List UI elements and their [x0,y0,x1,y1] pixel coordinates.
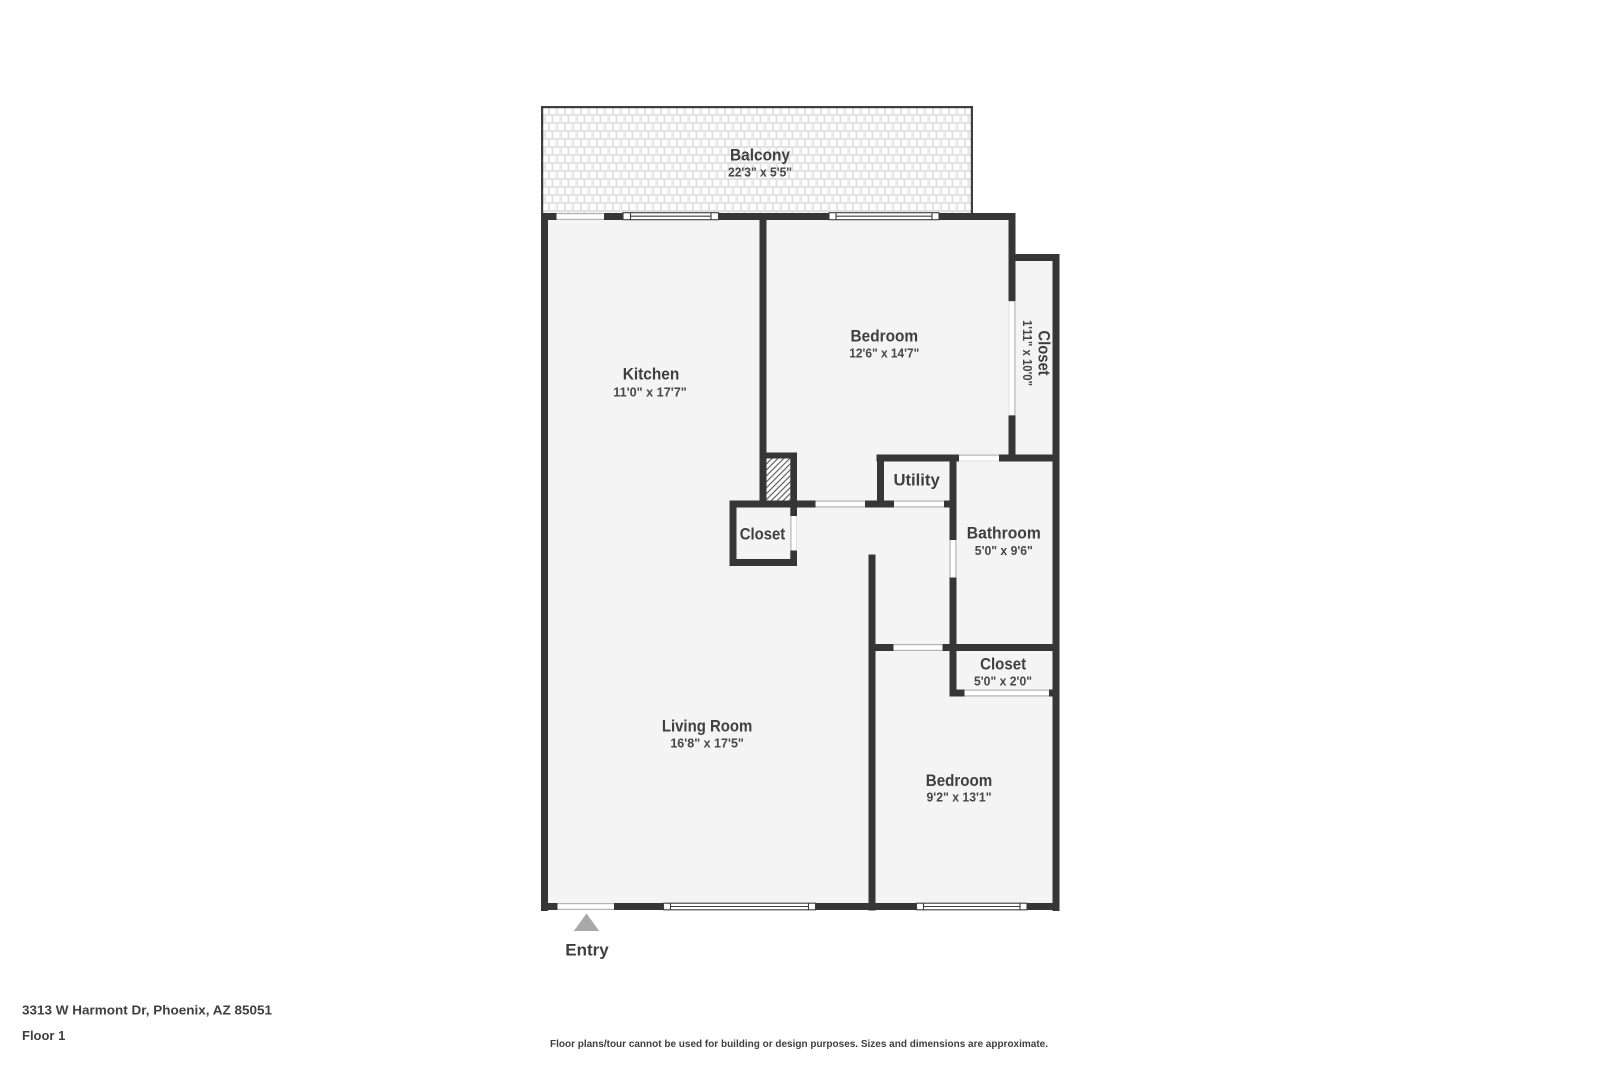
svg-text:Closet: Closet [740,525,786,544]
svg-text:Utility: Utility [893,471,940,490]
svg-text:Bedroom: Bedroom [926,771,993,790]
svg-text:9'2" x 13'1": 9'2" x 13'1" [927,790,992,805]
svg-text:11'0" x 17'7": 11'0" x 17'7" [613,385,687,400]
svg-text:Bathroom: Bathroom [967,524,1041,543]
svg-text:Closet: Closet [1035,330,1054,375]
svg-text:3313 W Harmont Dr, Phoenix, AZ: 3313 W Harmont Dr, Phoenix, AZ 85051 [22,1003,272,1018]
svg-text:Floor 1: Floor 1 [22,1028,65,1043]
svg-text:Kitchen: Kitchen [623,365,680,384]
svg-text:22'3" x 5'5": 22'3" x 5'5" [728,165,792,180]
svg-text:12'6" x 14'7": 12'6" x 14'7" [849,346,919,361]
svg-text:16'8" x 17'5": 16'8" x 17'5" [670,736,744,751]
svg-text:5'0" x 2'0": 5'0" x 2'0" [974,674,1032,689]
svg-text:Floor plans/tour cannot be use: Floor plans/tour cannot be used for buil… [550,1039,1048,1050]
svg-text:Entry: Entry [565,941,609,960]
svg-text:1'11" x 10'0": 1'11" x 10'0" [1020,320,1035,386]
svg-text:Bedroom: Bedroom [851,327,919,346]
svg-text:Living Room: Living Room [662,717,753,736]
svg-text:Closet: Closet [980,655,1026,674]
svg-text:Balcony: Balcony [730,146,790,165]
svg-text:5'0" x 9'6": 5'0" x 9'6" [975,543,1033,558]
